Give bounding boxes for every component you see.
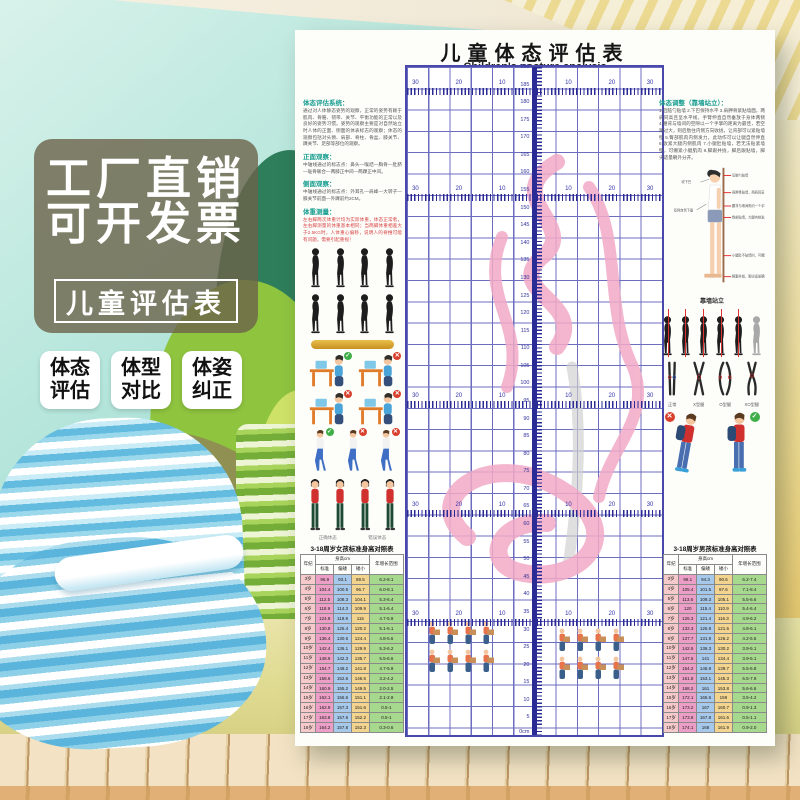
grid-ruler-band: 302010102030 xyxy=(407,504,662,517)
girls-height-table: 3-18周岁女孩标准身高对照表 年纪身高cm年增长范围标准偏矮矮小3岁96.99… xyxy=(300,544,404,733)
ruler-label: 75 xyxy=(523,468,529,474)
promo-product-label: 儿童评估表 xyxy=(54,279,238,323)
table-row: 17岁163.8157.6152.20.5-1 xyxy=(301,713,404,723)
section-head: 体重测量： xyxy=(303,206,402,216)
svg-text:小腿肚不贴墙时，可绷紧小腿: 小腿肚不贴墙时，可绷紧小腿 xyxy=(732,253,765,258)
band-number: 30 xyxy=(647,393,654,399)
table-row: 6岁120115.4110.95.4-6.4 xyxy=(664,604,767,614)
section-head: 体态调整（靠墙站立）： xyxy=(659,97,765,107)
sitting-posture-row: ✕ ✕ xyxy=(303,392,402,426)
svg-text:双臂自然下垂: 双臂自然下垂 xyxy=(674,208,694,213)
svg-text:臀部贴墙，大腿内侧发力: 臀部贴墙，大腿内侧发力 xyxy=(732,215,765,220)
band-number: 20 xyxy=(608,186,615,192)
band-number: 20 xyxy=(455,611,462,617)
band-number: 10 xyxy=(499,393,506,399)
ruler-label: 175 xyxy=(520,117,529,123)
band-number: 30 xyxy=(412,186,419,192)
svg-text:后脑勺贴墙: 后脑勺贴墙 xyxy=(732,173,749,178)
band-number: 20 xyxy=(608,393,615,399)
ruler-label: 135 xyxy=(520,257,529,263)
promo-line-2: 可开发票 xyxy=(34,202,258,247)
lifting-figures-left xyxy=(425,621,495,675)
ruler-label: 115 xyxy=(521,328,530,334)
feature-badges: 体态 评估 体型 对比 体姿 纠正 xyxy=(40,351,242,409)
band-number: 20 xyxy=(608,611,615,617)
walking-posture-row: ✓ ✕ ✕ xyxy=(303,430,402,474)
cross-icon: ✕ xyxy=(392,428,400,436)
table-row: 12岁154.7148.2141.84.7-5.9 xyxy=(301,663,404,673)
ruler-label: 55 xyxy=(523,539,529,545)
table-row: 5岁112.5108.3104.15.3-6.4 xyxy=(301,594,404,604)
table-row: 12岁154.2146.9139.75.5-6.8 xyxy=(664,663,767,673)
ruler-label: 100 xyxy=(520,380,529,386)
ruler-label: 130 xyxy=(520,275,529,281)
table-row: 7岁126.3121.4116.34.9-6.2 xyxy=(664,614,767,624)
ruler-label: 145 xyxy=(520,222,529,228)
ruler-label: 110 xyxy=(521,345,530,351)
wall-stand-diagram: 后脑勺贴墙 肩胛骨贴墙，两肩同高 腰背与墙间隙约一个手掌 臀部贴墙，大腿内侧发力… xyxy=(659,164,765,290)
girls-table-title: 3-18周岁女孩标准身高对照表 xyxy=(300,544,404,553)
ruler-label: 0cm xyxy=(519,729,529,735)
band-number: 20 xyxy=(455,186,462,192)
band-number: 20 xyxy=(455,80,462,86)
table-row: 11岁147.6141134.43.9-5.1 xyxy=(664,653,767,663)
svg-text:肩胛骨贴墙，两肩同高: 肩胛骨贴墙，两肩同高 xyxy=(732,190,765,195)
boys-height-table: 3-18周岁男孩标准身高对照表 年纪身高cm年增长范围标准偏矮矮小3岁98.19… xyxy=(663,544,767,733)
table-row: 4岁105.4101.597.67.1-8.4 xyxy=(664,584,767,594)
badge-posture-assessment: 体态 评估 xyxy=(40,351,100,409)
table-row: 17岁173.8167.8161.60.5-1.1 xyxy=(664,713,767,723)
striped-armchair xyxy=(0,418,276,748)
backpack-kids-row: ✕ ✓ xyxy=(659,412,765,478)
cross-icon: ✕ xyxy=(359,428,367,436)
table-row: 18岁174.1168161.90.9-2.0 xyxy=(664,723,767,733)
ruler-label: 70 xyxy=(523,486,529,492)
table-row: 11岁148.9142.3135.75.5-6.6 xyxy=(301,653,404,663)
gold-banner xyxy=(311,340,394,349)
cross-icon: ✕ xyxy=(393,390,401,398)
ruler-label: 90 xyxy=(523,416,529,422)
table-row: 18岁164.2157.8152.30.3-0.6 xyxy=(301,723,404,733)
ruler-label: 150 xyxy=(520,205,529,211)
band-number: 30 xyxy=(412,393,419,399)
section-body: 通过对人体静态姿势的观察，正常的姿势有赖于肌肉、骨骼、韧带、关节、平衡功能的正常… xyxy=(303,108,402,148)
badge-body-comparison: 体型 对比 xyxy=(111,351,171,409)
band-number: 10 xyxy=(565,186,572,192)
table-row: 3岁98.194.390.66.2-7.4 xyxy=(664,574,767,584)
left-column: 体态评估系统： 通过对人体静态姿势的观察，正常的姿势有赖于肌肉、骨骼、韧带、关节… xyxy=(303,94,402,541)
ruler-label: 105 xyxy=(520,363,529,369)
table-row: 10岁142.4136.1129.95.3-6.2 xyxy=(301,644,404,654)
table-row: 16岁173.2167160.70.9-1.3 xyxy=(664,703,767,713)
table-row: 13岁161.8153.1145.36.5-7.9 xyxy=(664,673,767,683)
band-number: 30 xyxy=(647,611,654,617)
ruler-label: 5 xyxy=(526,714,529,720)
ruler-label: 80 xyxy=(523,451,529,457)
grid-ruler-band: 302010102030 xyxy=(407,395,662,408)
section-body: 左右脚两次体重计均为实际体重，体态正常者，左右脚测量的体重基本相同；当两脚体重相… xyxy=(303,217,402,244)
wood-floor-edge xyxy=(0,786,800,800)
ruler-label: 15 xyxy=(523,679,529,685)
table-row: 3岁96.993.189.56.2-8.1 xyxy=(301,574,404,584)
ruler-label: 25 xyxy=(523,644,529,650)
band-number: 30 xyxy=(412,502,419,508)
section-body: 中轴线通过的标志点：外耳孔—肩峰—大转子—膝关节前面—外踝前约2CM。 xyxy=(303,189,402,202)
ruler-label: 190 xyxy=(520,64,529,70)
table-row: 16岁162.9157.3151.60.5-1 xyxy=(301,703,404,713)
ruler-label: 165 xyxy=(520,152,529,158)
band-number: 10 xyxy=(565,502,572,508)
band-number: 30 xyxy=(647,186,654,192)
ruler-label: 180 xyxy=(520,99,529,105)
band-number: 10 xyxy=(499,502,506,508)
section-head: 正面观察： xyxy=(303,151,402,161)
ruler-label: 170 xyxy=(520,134,529,140)
table-row: 14岁168.2161153.85.6-6.6 xyxy=(664,683,767,693)
table-row: 5岁113.6109.3105.15.5-6.6 xyxy=(664,594,767,604)
band-number: 10 xyxy=(499,80,506,86)
band-number: 10 xyxy=(565,80,572,86)
cross-icon: ✕ xyxy=(344,390,352,398)
table-row: 14岁160.9155.2149.52.0-2.5 xyxy=(301,683,404,693)
section-head: 体态评估系统： xyxy=(303,97,402,107)
svg-text:脚跟并拢，脚尖适量朝外: 脚跟并拢，脚尖适量朝外 xyxy=(732,274,765,279)
lifting-figures-right xyxy=(555,628,625,682)
ruler-label: 50 xyxy=(523,556,529,562)
cross-icon: ✕ xyxy=(393,352,401,360)
ruler-label: 85 xyxy=(523,433,529,439)
table-row: 9岁136.4130.6124.44.8-5.6 xyxy=(301,634,404,644)
ruler-label: 20 xyxy=(523,662,529,668)
section-body: 1.后脑勺贴墙 2.下巴保持水平 3.肩胛骨紧贴墙面，两肩同高且呈水平线，手臂伸… xyxy=(659,108,765,161)
table-row: 8岁130.8125.4120.25.1-6.1 xyxy=(301,624,404,634)
plumbline-silhouette-row xyxy=(659,309,765,357)
sitting-posture-row: ✓ ✕ xyxy=(303,354,402,388)
promo-panel: 工厂直销 可开发票 儿童评估表 xyxy=(34,139,258,333)
ruler-label: 120 xyxy=(520,310,529,316)
table-row: 10岁142.5136.3130.23.9-5.1 xyxy=(664,644,767,654)
ruler-label: 160 xyxy=(520,169,529,175)
table-row: 6岁118.9114.3109.95.1-6.4 xyxy=(301,604,404,614)
section-head: 侧面观察： xyxy=(303,178,402,188)
leg-types-row: 正常 X型腿 O型腿 XO型腿 xyxy=(659,361,765,408)
table-row: 15岁172.1165.61593.5-4.2 xyxy=(664,693,767,703)
band-number: 10 xyxy=(499,611,506,617)
posture-silhouette-row xyxy=(303,293,402,335)
posture-chart-poster: 儿童体态评估表 Children's posture analysis 1901… xyxy=(295,30,775,746)
band-number: 10 xyxy=(565,611,572,617)
ruler-label: 140 xyxy=(520,240,529,246)
svg-text:腰背与墙间隙约一个手掌: 腰背与墙间隙约一个手掌 xyxy=(732,203,765,208)
check-icon: ✓ xyxy=(750,412,760,422)
grid-ruler-band: 302010102030 xyxy=(407,82,662,95)
table-row: 15岁162.1156.6151.12.1-2.9 xyxy=(301,693,404,703)
posture-silhouette-row xyxy=(303,247,402,289)
band-number: 20 xyxy=(608,80,615,86)
band-number: 30 xyxy=(647,502,654,508)
ruler-label: 30 xyxy=(523,627,529,633)
grid-ruler-band: 302010102030 xyxy=(407,188,662,201)
band-number: 30 xyxy=(412,611,419,617)
boys-table-title: 3-18周岁男孩标准身高对照表 xyxy=(663,544,767,553)
section-body: 中轴线通过的标志点：鼻头—喉结—胸骨—肚脐—耻骨联合—两膝正中间—两踝正中间。 xyxy=(303,162,402,175)
ruler-label: 40 xyxy=(523,591,529,597)
ruler-label: 45 xyxy=(523,574,529,580)
svg-text:收下巴: 收下巴 xyxy=(681,179,691,184)
grid-ruler-band: 302010102030 xyxy=(407,613,662,626)
standing-girls-row xyxy=(303,478,402,534)
table-row: 9岁137.7131.9126.24.2-5.5 xyxy=(664,634,767,644)
band-number: 10 xyxy=(499,186,506,192)
ruler-label: 10 xyxy=(523,697,529,703)
cross-icon: ✕ xyxy=(665,412,675,422)
table-row: 13岁158.6152.6146.53.2-4.2 xyxy=(301,673,404,683)
ruler-label: 125 xyxy=(520,293,529,299)
right-column: 体态调整（靠墙站立）： 1.后脑勺贴墙 2.下巴保持水平 3.肩胛骨紧贴墙面，两… xyxy=(659,94,765,478)
table-row: 8岁132.3126.9121.64.8-6.1 xyxy=(664,624,767,634)
band-number: 20 xyxy=(455,502,462,508)
band-number: 30 xyxy=(647,80,654,86)
check-icon: ✓ xyxy=(344,352,352,360)
check-icon: ✓ xyxy=(326,428,334,436)
band-number: 10 xyxy=(565,393,572,399)
girls-caption-row: 正确体态 错误体态 xyxy=(303,535,402,541)
screenshot-root: 儿童体态评估表 Children's posture analysis 1901… xyxy=(0,0,800,800)
band-number: 20 xyxy=(455,393,462,399)
table-row: 7岁124.8119.91154.7-5.9 xyxy=(301,614,404,624)
band-number: 30 xyxy=(412,80,419,86)
table-row: 4岁104.4100.596.76.0-8.1 xyxy=(301,584,404,594)
measurement-grid: 1901851801751701651601551501451401351301… xyxy=(405,65,664,737)
badge-posture-correction: 体姿 纠正 xyxy=(182,351,242,409)
wall-stand-caption: 靠墙站立 xyxy=(659,296,765,305)
ruler-label: 60 xyxy=(523,521,529,527)
band-number: 20 xyxy=(608,502,615,508)
promo-line-1: 工厂直销 xyxy=(34,157,258,202)
